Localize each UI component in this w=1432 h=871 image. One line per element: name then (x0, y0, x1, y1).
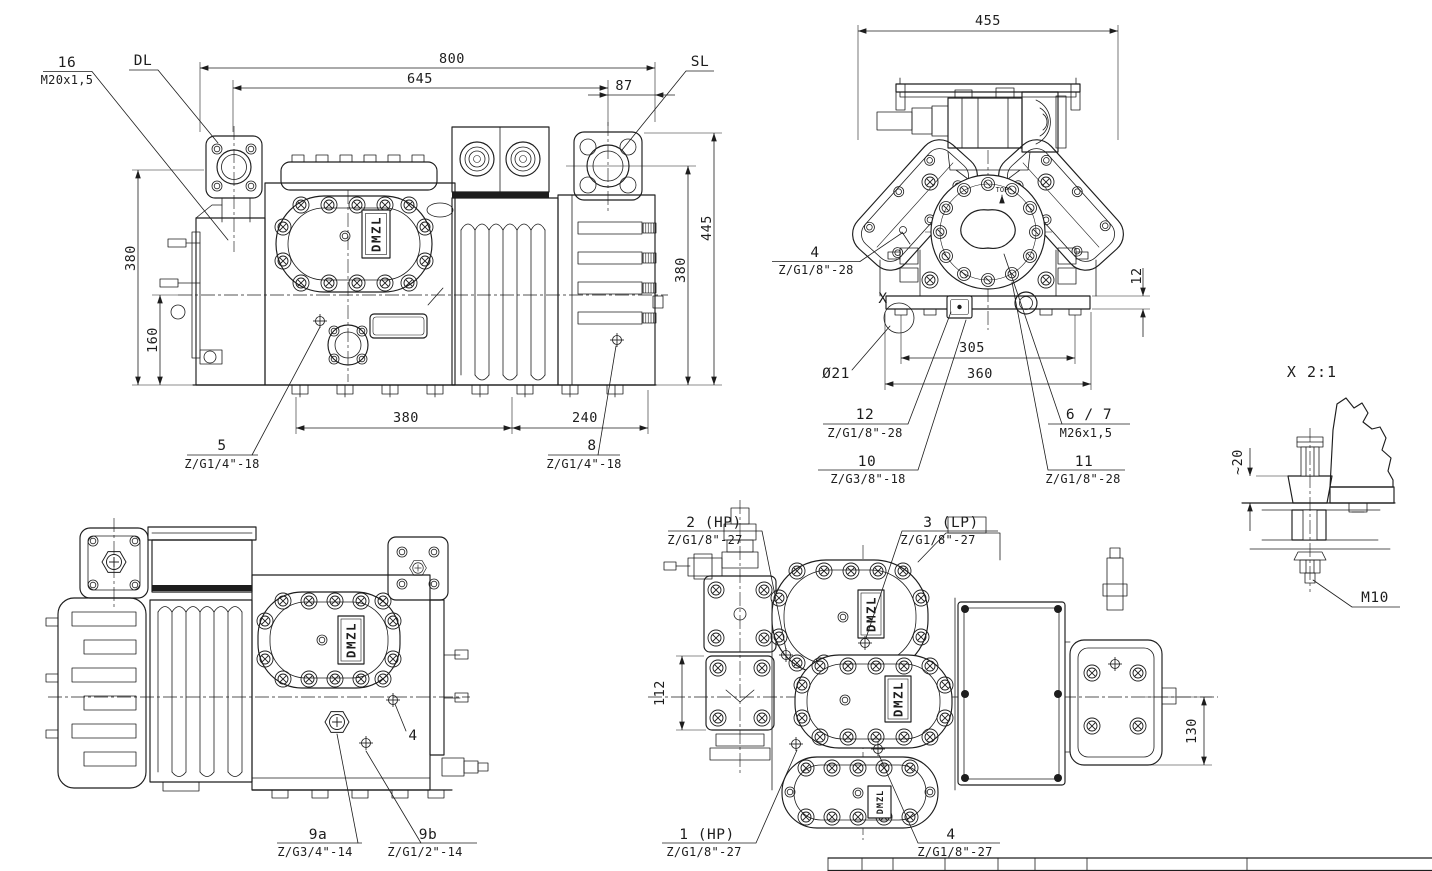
dim-445: 445 (699, 215, 715, 241)
crankcase: DMZL (265, 155, 455, 385)
callout-6-7-spec: M26x1,5 (1060, 426, 1113, 440)
callout-4-top: 4 (946, 827, 955, 843)
dim-87: 87 (615, 78, 632, 94)
callout-4-spec: Z/G1/8"-28 (778, 263, 853, 277)
callout-3-lp: 3 (LP) (923, 515, 978, 531)
rear-discharge-flange (388, 537, 448, 600)
dia-21-label: Ø21 (822, 366, 850, 382)
callout-11-spec: Z/G1/8"-28 (1045, 472, 1120, 486)
dim-645: 645 (407, 71, 433, 87)
callout-16-spec: M20x1,5 (41, 73, 94, 87)
dim-160: 160 (145, 327, 161, 353)
callout-8-spec: Z/G1/4"-18 (546, 457, 621, 471)
side-view: DMZL (41, 51, 722, 471)
detail-x-dimension: ~20 (1230, 448, 1292, 531)
dim-360: 360 (967, 366, 993, 382)
rubber-mount (1242, 428, 1395, 592)
thread-m10-label: M10 (1361, 590, 1389, 606)
middle-cylinder-cover: DMZL (794, 655, 953, 748)
dim-305: 305 (959, 340, 985, 356)
cover-tabs (292, 155, 424, 162)
motor-end-fins (46, 598, 146, 788)
callout-3-lp-spec: Z/G1/8"-27 (900, 533, 975, 547)
dim-800: 800 (439, 51, 465, 67)
rear-pump-end (430, 600, 488, 776)
dim-380-left: 380 (123, 245, 139, 271)
callout-1-hp-spec: Z/G1/8"-27 (666, 845, 741, 859)
rear-crankcase: DMZL (252, 575, 430, 790)
rear-side-view: DMZL 4 9a Z/G3/4"-14 (46, 518, 488, 859)
callout-2-hp-spec: Z/G1/8"-27 (667, 533, 742, 547)
callout-1-hp: 1 (HP) (679, 827, 734, 843)
mounting-feet (193, 385, 656, 397)
mounting-rail (896, 78, 1080, 110)
side-view-callouts: 16 M20x1,5 DL SL 5 Z/G1/4"-18 8 Z/G1/4"-… (41, 53, 714, 471)
side-view-dimensions: 800 645 87 380 160 445 380 380 240 (123, 51, 722, 434)
bottom-brand-logo: DMZL (876, 790, 886, 814)
top-marking: TOP (996, 186, 1009, 194)
callout-4-top-spec: Z/G1/8"-27 (917, 845, 992, 859)
detail-x-circle (884, 303, 914, 333)
dim-380-bottom: 380 (393, 410, 419, 426)
detail-x-marker: X (878, 291, 887, 307)
callout-12: 12 (856, 407, 874, 423)
dim-12: 12 (1129, 267, 1145, 284)
pump-end-top (1065, 548, 1176, 765)
callout-11: 11 (1075, 454, 1093, 470)
suction-end-housing (558, 195, 663, 385)
air-duct (148, 527, 256, 592)
dim-112: 112 (652, 680, 668, 706)
callout-5: 5 (217, 438, 226, 454)
callout-5-spec: Z/G1/4"-18 (184, 457, 259, 471)
callout-sl: SL (691, 54, 709, 70)
brand-logo: DMZL (369, 216, 384, 252)
front-view: TOP 455 305 36 (772, 13, 1150, 486)
foot-bracket-section (1330, 398, 1393, 487)
cylinder-fins (150, 600, 252, 791)
detail-x: X 2:1 ~20 M10 (1230, 363, 1400, 607)
port-5-screw (313, 314, 327, 328)
callout-16: 16 (58, 55, 76, 71)
callout-6-7: 6 / 7 (1066, 407, 1112, 423)
rear-brand-logo: DMZL (344, 622, 359, 658)
service-valve-block (452, 127, 549, 198)
callout-8: 8 (587, 438, 596, 454)
callout-10-spec: Z/G3/8"-18 (830, 472, 905, 486)
port-4-screw-rear (386, 693, 400, 707)
callout-4: 4 (810, 245, 819, 261)
rear-feet (252, 790, 452, 798)
callout-9b: 9b (419, 827, 437, 843)
middle-brand-logo: DMZL (891, 681, 906, 717)
name-plate (370, 314, 427, 338)
engineering-drawing-sheet: DMZL (0, 0, 1432, 871)
base-plate (884, 292, 1090, 333)
callout-4-rear: 4 (408, 728, 417, 744)
port-1-hp-screw (789, 737, 803, 751)
dim-380-right: 380 (673, 257, 689, 283)
dim-240: 240 (572, 410, 598, 426)
oil-drain-plug-9a (325, 712, 349, 733)
rear-view-callouts: 4 9a Z/G3/4"-14 9b Z/G1/2"-14 (277, 704, 477, 859)
oil-drain-plug-9b (359, 736, 373, 750)
terminal-box (958, 602, 1065, 785)
dim-20: ~20 (1230, 449, 1246, 475)
shaft-seal-flange: TOP (922, 174, 1054, 289)
callout-dl: DL (134, 53, 152, 69)
callout-2-hp: 2 (HP) (686, 515, 741, 531)
dim-130: 130 (1184, 718, 1200, 744)
bottom-cylinder-cover: DMZL (782, 757, 938, 828)
callout-9b-spec: Z/G1/2"-14 (387, 845, 462, 859)
drawing-canvas: DMZL (0, 0, 1432, 871)
callout-10: 10 (858, 454, 876, 470)
port-8-screw (610, 333, 624, 347)
callout-12-spec: Z/G1/8"-28 (827, 426, 902, 440)
title-block (828, 858, 1432, 871)
callout-9a: 9a (309, 827, 327, 843)
motor-cooling-fins (452, 198, 558, 385)
top-brand-logo: DMZL (864, 596, 879, 632)
dim-455: 455 (975, 13, 1001, 29)
top-view: DMZL DMZL DMZL (648, 500, 1218, 859)
callout-9a-spec: Z/G3/4"-14 (277, 845, 352, 859)
detail-x-title: X 2:1 (1287, 363, 1337, 381)
